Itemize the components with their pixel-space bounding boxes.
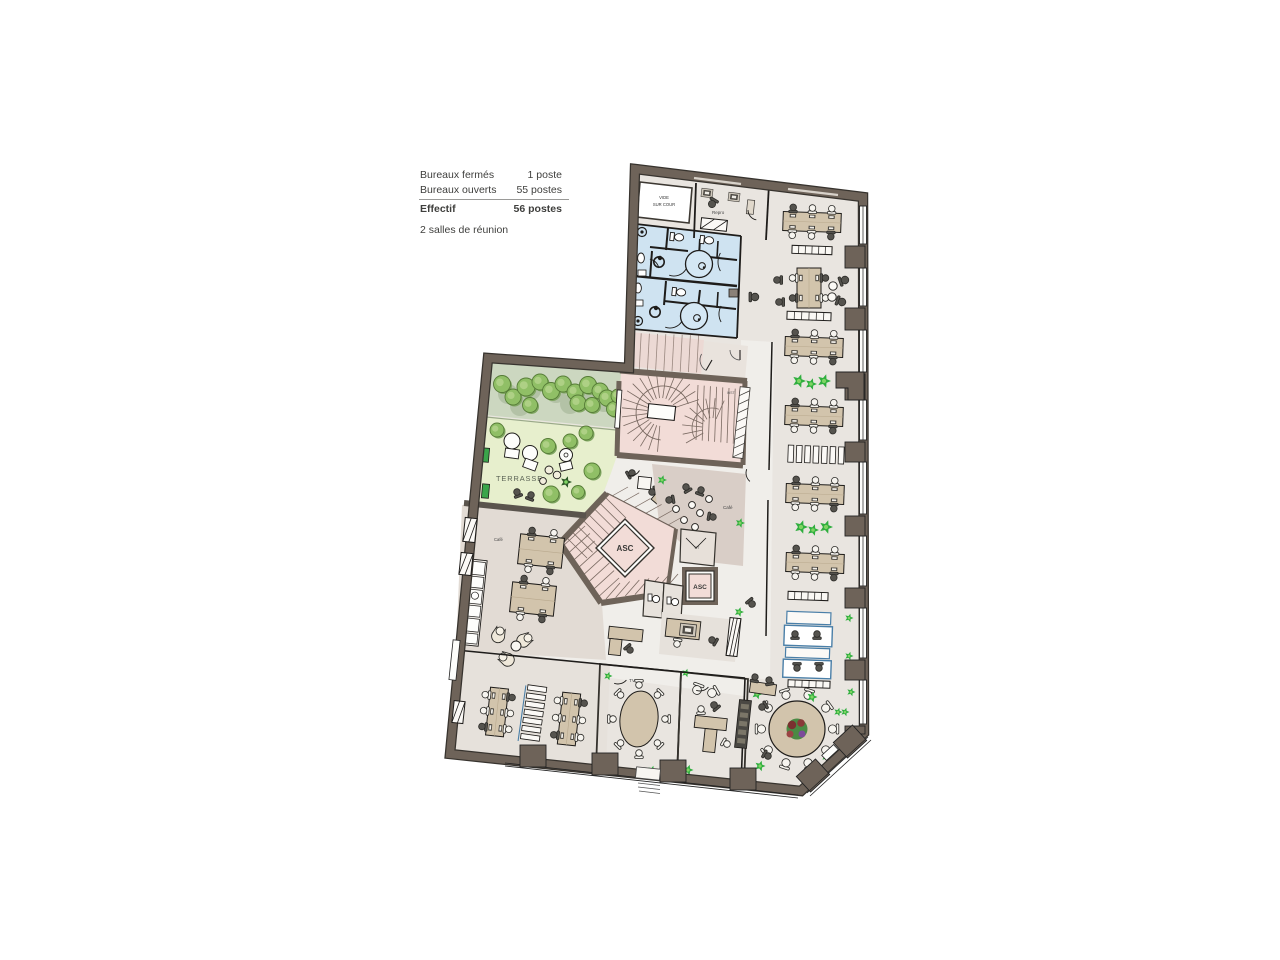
svg-text:Bureaux ouverts: Bureaux ouverts <box>420 184 496 196</box>
svg-text:WST: WST <box>727 391 735 395</box>
svg-text:55 postes: 55 postes <box>516 184 562 196</box>
svg-text:Café: Café <box>494 537 504 542</box>
svg-text:ASC: ASC <box>617 544 634 553</box>
svg-text:Bureaux fermés: Bureaux fermés <box>420 169 494 181</box>
svg-text:TV: TV <box>629 678 635 683</box>
svg-text:2 salles de réunion: 2 salles de réunion <box>420 224 508 236</box>
svg-text:ASC: ASC <box>693 584 707 591</box>
svg-text:TERRASSE: TERRASSE <box>496 474 543 483</box>
svg-text:56 postes: 56 postes <box>514 203 563 215</box>
svg-text:VIDE: VIDE <box>659 195 669 200</box>
svg-text:Repro: Repro <box>712 210 725 215</box>
svg-text:SUR COUR: SUR COUR <box>653 202 675 207</box>
svg-text:Effectif: Effectif <box>420 203 456 215</box>
svg-text:Café: Café <box>723 505 733 510</box>
svg-text:1 poste: 1 poste <box>528 169 563 181</box>
